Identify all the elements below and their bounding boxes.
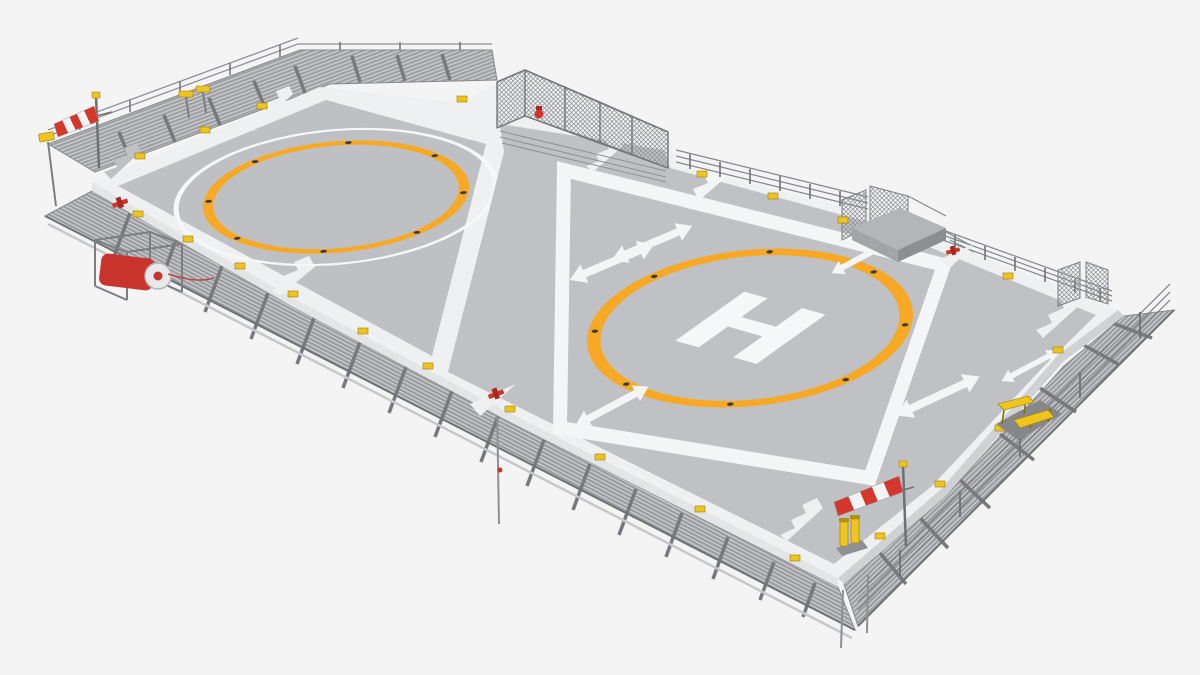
strut-red-marker	[498, 468, 503, 473]
helipad-render: Helideck 3D render — twin helipad platfo…	[0, 0, 1200, 675]
fire-extinguisher	[535, 110, 544, 119]
helipad-svg: Helideck 3D render — twin helipad platfo…	[0, 0, 1200, 675]
